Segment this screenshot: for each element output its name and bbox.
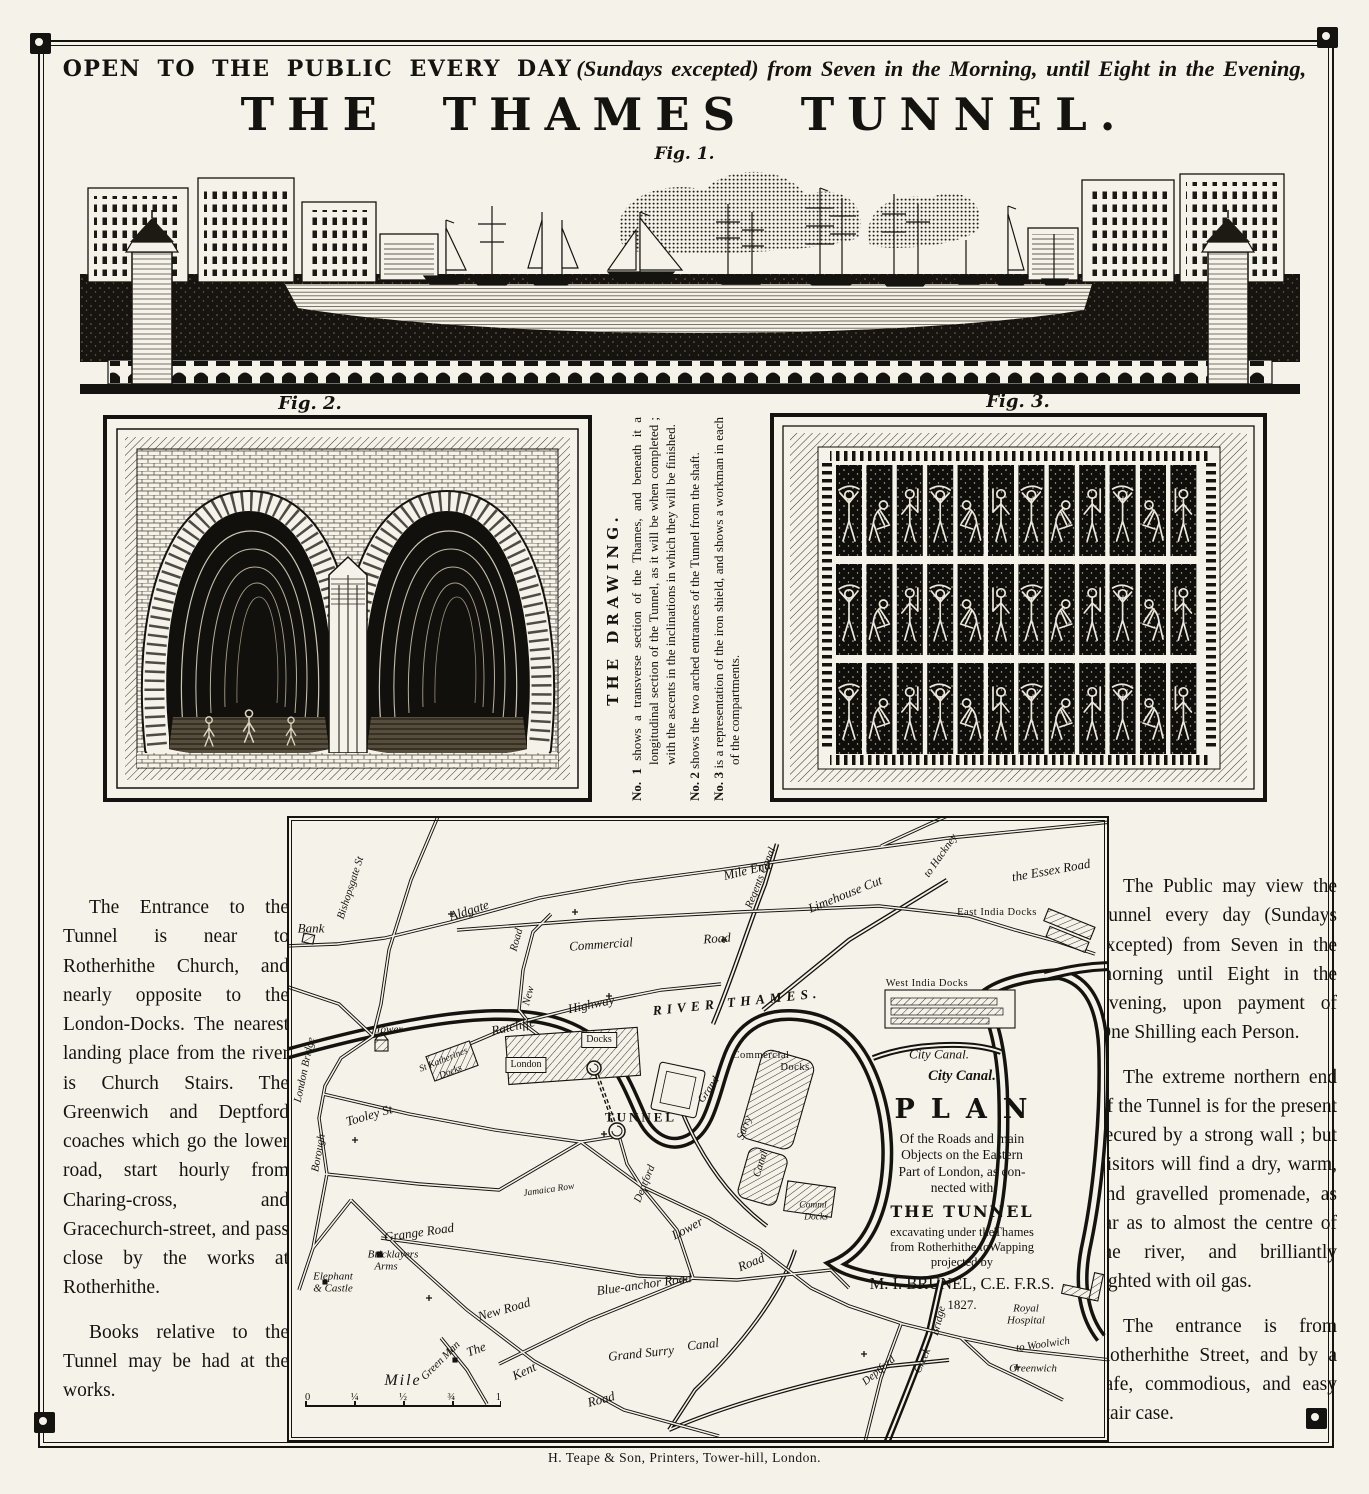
plan-line: Objects on the Eastern <box>865 1147 1059 1163</box>
city-canal-label: City Canal. <box>865 1068 1059 1085</box>
map-label: & Castle <box>313 1284 352 1295</box>
fig3-caption: Fig. 3. <box>948 391 1088 412</box>
drawing-note: No. 1 shows a transverse section of the … <box>629 417 680 801</box>
fig3-tick-border <box>830 451 1208 461</box>
plan-line: Part of London, as con- <box>865 1164 1059 1180</box>
central-pier <box>329 557 367 753</box>
map-label: Bank <box>298 922 325 935</box>
map-label: Road <box>736 1251 766 1273</box>
map-label: Deptford <box>633 1164 658 1205</box>
map-label: Elephant <box>313 1272 353 1283</box>
plan-author: M. I. BRUNEL, C.E. F.R.S. <box>865 1274 1059 1294</box>
map-label: Commercial <box>733 1051 790 1062</box>
entrance-paragraph: The Entrance to the Tunnel is near to Ro… <box>63 893 289 1303</box>
staircase-paragraph: The entrance is from Rotherhithe Street,… <box>1097 1312 1337 1429</box>
fig2-caption: Fig. 2. <box>240 393 380 414</box>
plan-tunnel-label: THE TUNNEL <box>865 1202 1059 1221</box>
map-plan: BankBishopsgate StLondon BridgeBoroughAl… <box>287 816 1109 1442</box>
drawing-notes-heading: THE DRAWING. <box>604 417 622 801</box>
fig3-tick-border <box>1206 463 1216 747</box>
map-label: Tower <box>375 1025 402 1036</box>
plan-line: from Rotherhithe toWapping <box>865 1240 1059 1255</box>
note-text: is a representation of the iron shield, … <box>711 417 743 768</box>
map-label: Docks <box>804 1213 828 1223</box>
map-label: East India Docks <box>957 908 1037 919</box>
map-label: Jamaica Row <box>523 1183 575 1200</box>
note-label: No. 3 <box>711 772 726 801</box>
plan-line: projected by <box>865 1255 1059 1270</box>
right-text-column: The Public may view the Tunnel every day… <box>1097 872 1337 1444</box>
map-label: New Road <box>476 1295 531 1322</box>
map-label: Grange Road <box>383 1221 455 1244</box>
open-hours-line: OPEN TO THE PUBLIC EVERY DAY (Sundays ex… <box>0 56 1369 82</box>
map-label: Docks <box>780 1063 809 1074</box>
map-label: Blue-anchor Road <box>596 1271 693 1297</box>
promenade-paragraph: The extreme northern end of the Tunnel i… <box>1097 1063 1337 1297</box>
map-label: RIVER THAMES. <box>652 986 822 1017</box>
map-label: City Canal. <box>909 1048 969 1061</box>
map-label: Deptford <box>860 1354 897 1388</box>
map-label: Kent <box>510 1360 538 1382</box>
map-label: Road <box>509 927 526 952</box>
plan-cartouche: City Canal. PLAN Of the Roads and main O… <box>865 1068 1059 1313</box>
corner-bolt-icon <box>34 1412 55 1433</box>
ship-icon <box>472 206 512 285</box>
map-label: Canal <box>752 1150 771 1179</box>
drawing-note: No. 2 shows the two arched entrances of … <box>687 417 704 801</box>
map-label: Docks <box>581 1032 617 1048</box>
map-label: The <box>465 1340 488 1359</box>
map-label: the Essex Road <box>1011 857 1091 884</box>
corner-bolt-icon <box>30 33 51 54</box>
fig1-panorama-illustration <box>80 150 1300 394</box>
broadside-page: OPEN TO THE PUBLIC EVERY DAY (Sundays ex… <box>0 0 1369 1494</box>
plan-title: PLAN <box>865 1094 1059 1125</box>
map-label: Road <box>586 1389 616 1409</box>
map-label: West India Docks <box>886 979 968 990</box>
printer-imprint: H. Teape & Son, Printers, Tower-hill, Lo… <box>0 1450 1369 1466</box>
map-label: Comml <box>799 1201 826 1211</box>
map-label: Arms <box>374 1262 397 1273</box>
scale-bar <box>305 1405 501 1407</box>
map-label: Borough <box>310 1133 327 1172</box>
plan-line: Of the Roads and main <box>865 1131 1059 1147</box>
fig2-tunnel-entrances-illustration <box>103 415 592 802</box>
map-label: to Woolwich <box>1015 1336 1070 1354</box>
drawing-note: No. 3 is a representation of the iron sh… <box>711 417 745 801</box>
drawing-notes: THE DRAWING. No. 1 shows a transverse se… <box>604 417 758 801</box>
ship-icon <box>954 240 984 284</box>
stipple-cloud <box>868 193 980 248</box>
open-hours-italic: (Sundays excepted) from Seven in the Mor… <box>576 56 1306 81</box>
note-label: No. 1 <box>629 768 644 801</box>
note-text: shows the two arched entrances of the Tu… <box>687 452 702 769</box>
page-title: THE THAMES TUNNEL. <box>0 88 1369 141</box>
open-hours-bold: OPEN TO THE PUBLIC EVERY DAY <box>63 56 573 82</box>
map-label: Lower <box>669 1214 704 1241</box>
map-label: Commercial <box>569 935 634 952</box>
corner-bolt-icon <box>1306 1408 1327 1429</box>
fig2-foundation <box>137 753 558 768</box>
map-label: London Bridge <box>293 1036 318 1103</box>
scale-unit-label: Mile <box>305 1372 501 1390</box>
plan-line: excavating under theThames <box>865 1225 1059 1240</box>
map-label: Canal <box>687 1336 720 1352</box>
map-label: Bishopsgate St <box>336 855 367 920</box>
plan-year: 1827. <box>865 1297 1059 1313</box>
map-label: Bricklayers <box>368 1250 419 1261</box>
books-paragraph: Books relative to the Tunnel may be had … <box>63 1318 289 1406</box>
map-label: Regents Canal <box>744 846 778 910</box>
map-label: Road <box>703 931 731 946</box>
map-label: London <box>505 1057 546 1073</box>
note-label: No. 2 <box>687 772 702 801</box>
map-label: Tooley St <box>344 1102 393 1128</box>
map-label: Aldgate <box>448 898 490 923</box>
masthead: OPEN TO THE PUBLIC EVERY DAY (Sundays ex… <box>0 56 1369 164</box>
map-label: Hospital <box>1007 1316 1045 1327</box>
map-label: TUNNEL <box>605 1111 677 1124</box>
map-label: Grand Surry <box>607 1343 674 1363</box>
fig3-iron-shield-illustration <box>770 413 1267 802</box>
map-label: to Hackney <box>922 832 960 879</box>
tunnel-arcade <box>80 356 1300 394</box>
viewing-paragraph: The Public may view the Tunnel every day… <box>1097 872 1337 1048</box>
map-scale: Mile 0 ¼ ½ ¾ 1 <box>305 1372 501 1407</box>
map-label: Grand <box>696 1075 721 1105</box>
map-label: New <box>521 985 537 1007</box>
ship-icon <box>994 206 1028 285</box>
map-label: Limehouse Cut <box>806 873 884 914</box>
corner-bolt-icon <box>1317 27 1338 48</box>
fig1-caption: Fig. 1. <box>0 144 1369 164</box>
map-label: Surry <box>736 1115 755 1142</box>
fig3-tick-border <box>822 463 832 747</box>
note-text: shows a transverse section of the Thames… <box>629 417 678 765</box>
map-label: Ratcliffe <box>490 1015 536 1037</box>
map-label: Highway <box>567 993 616 1015</box>
left-text-column: The Entrance to the Tunnel is near to Ro… <box>63 893 289 1420</box>
map-label: Creek <box>913 1347 934 1375</box>
fig3-tick-border <box>830 755 1208 765</box>
map-label: Greenwich <box>1009 1364 1057 1375</box>
plan-line: nected with <box>865 1180 1059 1196</box>
